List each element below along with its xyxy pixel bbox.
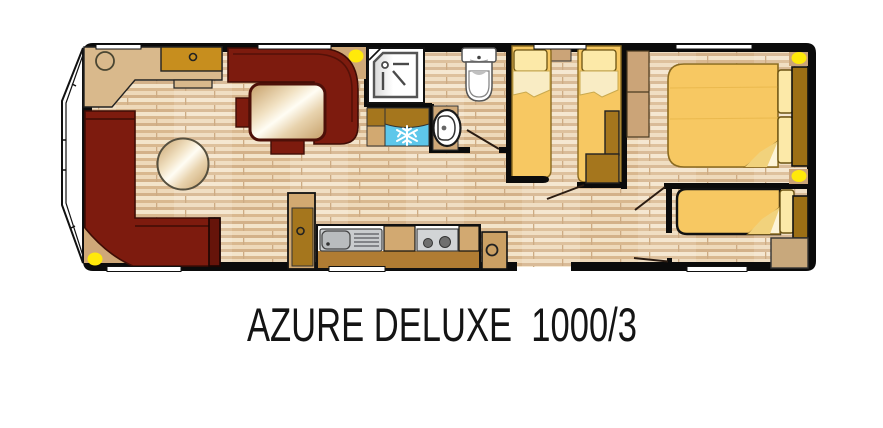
svg-text:AZURE DELUXE 1000/3: AZURE DELUXE 1000/3	[247, 298, 637, 351]
